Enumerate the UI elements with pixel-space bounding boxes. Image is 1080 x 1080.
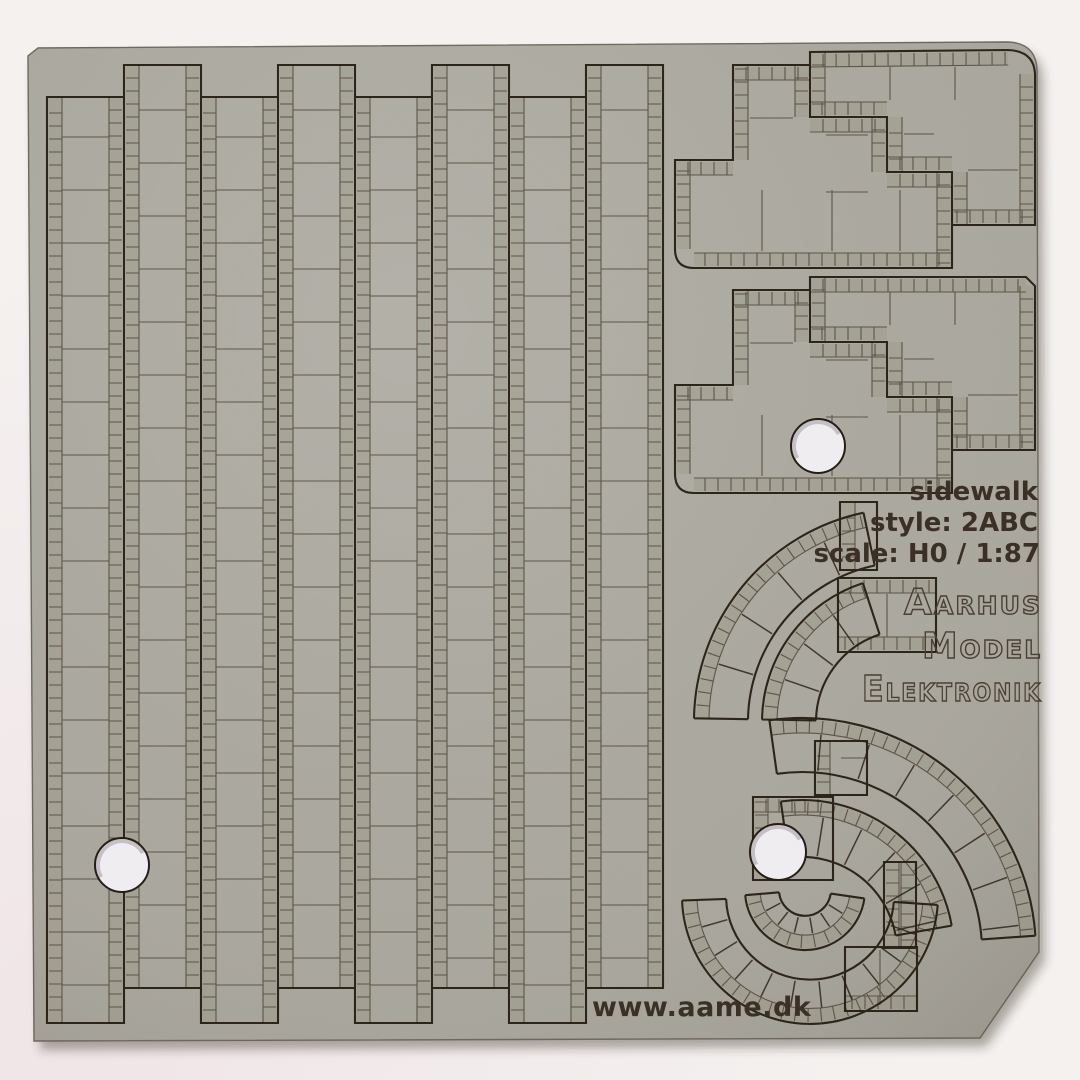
brand-line-3: Elektronik [862, 669, 1042, 710]
laser-cut-sheet: sidewalk style: 2ABC scale: H0 / 1:87 Aa… [0, 0, 1080, 1080]
product-photo: sidewalk style: 2ABC scale: H0 / 1:87 Aa… [0, 0, 1080, 1080]
product-label: sidewalk [910, 477, 1039, 507]
style-label: style: 2ABC [870, 508, 1038, 538]
scale-label: scale: H0 / 1:87 [813, 539, 1040, 569]
punched-hole [791, 419, 845, 473]
brand-line-1: Aarhus [904, 582, 1042, 623]
brand-line-2: Model [922, 626, 1042, 667]
website-label: www.aame.dk [592, 992, 812, 1023]
punched-hole [750, 824, 806, 880]
punched-hole [95, 838, 149, 892]
